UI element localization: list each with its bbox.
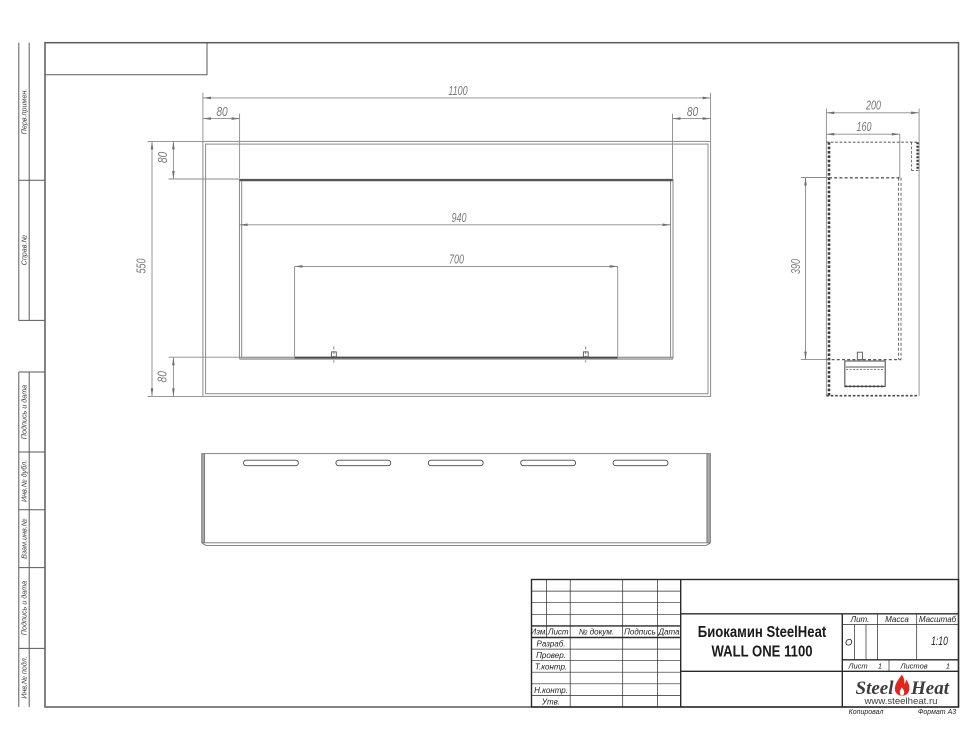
svg-text:Т.контр.: Т.контр. — [535, 662, 567, 671]
svg-text:Подпись и дата: Подпись и дата — [20, 385, 29, 439]
svg-text:1: 1 — [878, 661, 882, 670]
svg-text:Перв.примен.: Перв.примен. — [20, 89, 29, 135]
svg-text:1: 1 — [946, 661, 950, 670]
svg-text:80: 80 — [156, 371, 169, 383]
svg-text:www.steelheat.ru: www.steelheat.ru — [863, 696, 937, 707]
svg-text:Разраб.: Разраб. — [537, 639, 566, 648]
svg-text:Подпись и дата: Подпись и дата — [20, 581, 29, 635]
svg-text:Утв.: Утв. — [541, 698, 560, 707]
svg-text:Лит.: Лит. — [850, 615, 870, 624]
svg-text:940: 940 — [451, 211, 466, 225]
svg-text:Дата: Дата — [657, 628, 680, 637]
svg-text:Формат А3: Формат А3 — [918, 709, 956, 716]
svg-text:Н.контр.: Н.контр. — [534, 686, 568, 695]
svg-text:1100: 1100 — [448, 85, 467, 99]
svg-text:Инв.№ подл.: Инв.№ подл. — [20, 656, 29, 699]
svg-text:Взам.инв.№: Взам.инв.№ — [20, 518, 29, 559]
svg-text:О: О — [845, 638, 853, 649]
svg-text:700: 700 — [449, 253, 464, 267]
svg-text:80: 80 — [157, 151, 170, 163]
svg-text:200: 200 — [865, 99, 881, 113]
svg-text:80: 80 — [687, 106, 699, 119]
svg-text:160: 160 — [856, 121, 871, 135]
svg-text:Лист: Лист — [847, 661, 867, 670]
svg-text:Изм.: Изм. — [530, 628, 547, 637]
svg-text:550: 550 — [135, 258, 149, 273]
svg-text:Масштаб: Масштаб — [919, 615, 957, 624]
svg-text:Биокамин SteelHeat: Биокамин SteelHeat — [698, 624, 827, 641]
svg-text:Листов: Листов — [899, 661, 927, 670]
svg-text:Копировал: Копировал — [849, 709, 884, 716]
svg-text:Масса: Масса — [885, 615, 909, 624]
svg-text:80: 80 — [216, 106, 228, 119]
svg-text:Подпись: Подпись — [624, 628, 656, 637]
svg-text:Провер.: Провер. — [536, 651, 566, 660]
svg-text:Лист: Лист — [547, 628, 569, 637]
svg-text:Справ.№: Справ.№ — [20, 234, 29, 265]
svg-text:390: 390 — [790, 259, 804, 274]
svg-text:WALL ONE 1100: WALL ONE 1100 — [711, 643, 812, 660]
svg-text:№ докум.: № докум. — [579, 628, 614, 637]
svg-text:Инв.№ дубл.: Инв.№ дубл. — [20, 460, 29, 502]
svg-text:1:10: 1:10 — [931, 636, 948, 649]
